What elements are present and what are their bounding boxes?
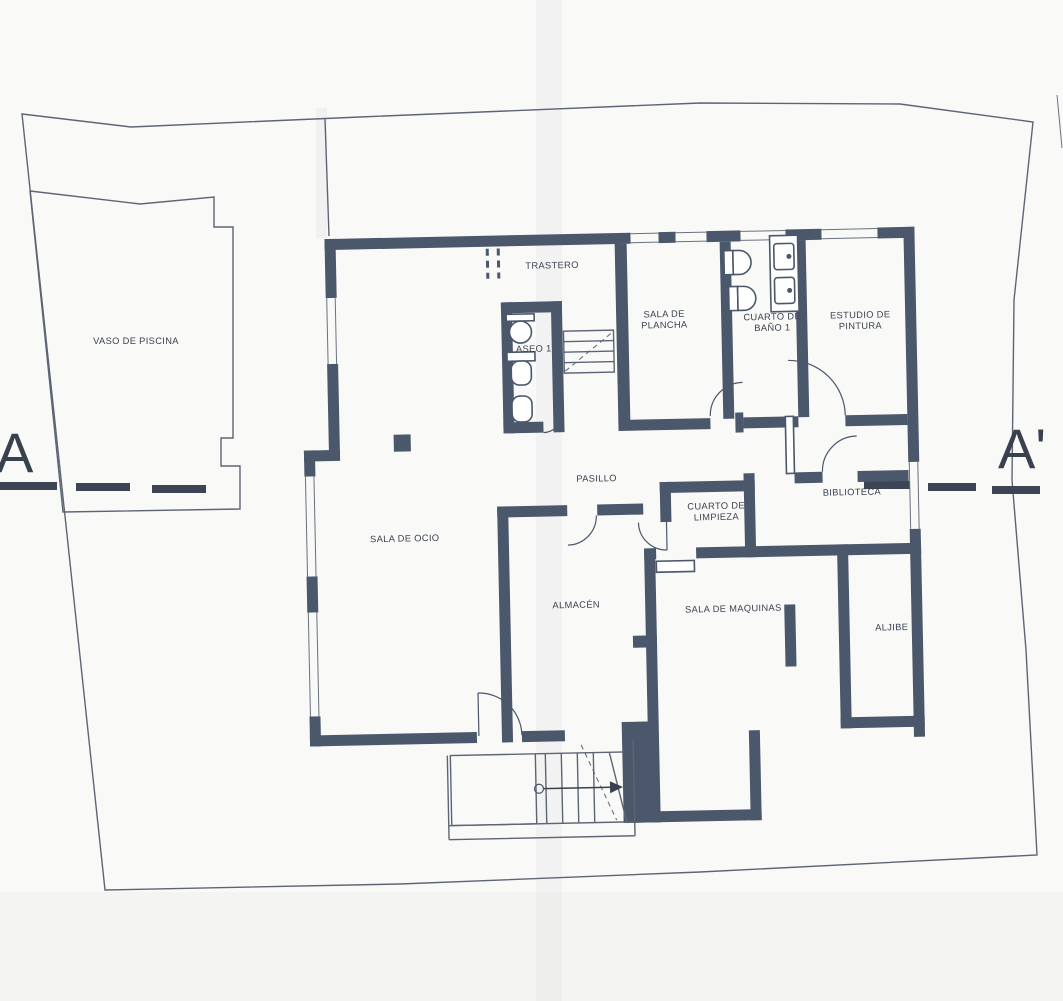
- room-label-almacen: ALMACÉN: [552, 599, 600, 610]
- toilet-symbol: [724, 250, 751, 275]
- room-label-vaso-de-piscina: VASO DE PISCINA: [93, 336, 179, 346]
- room-label-cuarto-de-bano-1: CUARTO DEBAÑO 1: [743, 311, 801, 333]
- bano-fixtures: [724, 235, 800, 313]
- window-openings: [300, 228, 922, 717]
- door-swing-symbol: [638, 522, 667, 551]
- toilet-symbol: [511, 361, 531, 385]
- room-label-trastero: TRASTERO: [525, 260, 579, 271]
- vanity-sinks-symbol: [770, 235, 800, 312]
- door-leaf: [656, 560, 694, 572]
- pool-basin: VASO DE PISCINA: [30, 191, 240, 512]
- paper-fold-shadows: [0, 0, 1063, 1001]
- room-label-biblioteca: BIBLIOTECA: [823, 487, 882, 498]
- room-label-sala-de-ocio: SALA DE OCIO: [370, 533, 440, 544]
- section-line-dashes: [0, 481, 1040, 494]
- toilet-symbol: [729, 286, 756, 311]
- room-label-estudio-de-pintura: ESTUDIO DEPINTURA: [830, 309, 891, 331]
- room-label-sala-de-plancha: SALA DEPLANCHA: [641, 309, 688, 331]
- room-label-cuarto-de-limpieza: CUARTO DELIMPIEZA: [687, 500, 745, 522]
- floor-plan-scan: VASO DE PISCINA A A': [0, 0, 1063, 1001]
- door-leaf: [785, 416, 794, 473]
- room-label-sala-de-maquinas: SALA DE MAQUINAS: [685, 603, 782, 615]
- section-marker-a-prime: A': [998, 417, 1046, 480]
- room-labels: TRASTERO ASEO 1 SALA DEPLANCHA CUARTO DE…: [364, 253, 908, 643]
- door-swing-symbol: [567, 515, 597, 545]
- bidet-symbol: [512, 396, 533, 422]
- room-label-aseo-1: ASEO 1: [516, 343, 552, 354]
- door-swing-symbol: [788, 359, 845, 416]
- section-marker-a: A: [0, 421, 34, 484]
- door-swing-symbol: [478, 692, 522, 736]
- stair-symbol: [563, 330, 614, 373]
- room-label-aljibe: ALJIBE: [875, 622, 908, 633]
- floor-plan-drawing: VASO DE PISCINA A A': [0, 0, 1063, 1001]
- sink-symbol: [506, 314, 534, 322]
- room-label-pasillo: PASILLO: [576, 473, 617, 484]
- door-swing-symbol: [822, 436, 858, 472]
- sink-symbol: [509, 321, 531, 343]
- building: TRASTERO ASEO 1 SALA DEPLANCHA CUARTO DE…: [299, 227, 926, 843]
- column-symbol: [394, 434, 411, 451]
